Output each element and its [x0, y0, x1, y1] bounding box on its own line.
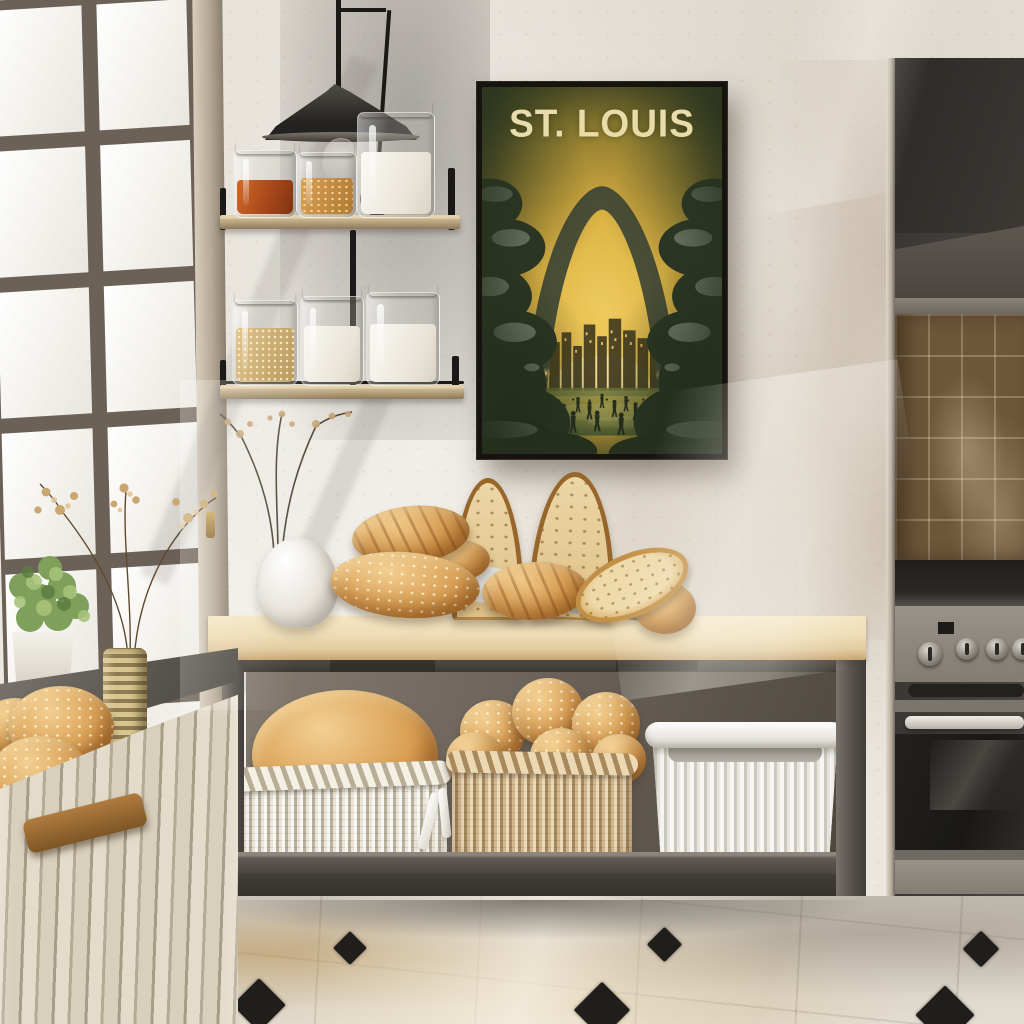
dried-branches: [212, 404, 372, 554]
oven-handle: [905, 716, 1024, 729]
oven-knob: [956, 638, 978, 660]
oven-trim: [895, 850, 1024, 860]
flour-jar-2: [366, 292, 440, 386]
oven-trim: [895, 700, 1024, 712]
ceramic-vase: [258, 538, 338, 628]
jar-lid: [369, 282, 437, 296]
table-floor-shadow: [200, 900, 880, 940]
window-pane: [0, 287, 92, 418]
jar-lid: [303, 286, 361, 300]
poster-title: ST. LOUIS: [482, 102, 722, 146]
poster-artwork: ST. LOUIS: [482, 87, 722, 454]
basket-rim: [446, 750, 638, 775]
paprika-jar: [233, 150, 297, 218]
jar-lid: [235, 290, 295, 304]
flour-contents: [361, 152, 431, 214]
apron-slot: [616, 660, 698, 671]
jar-lid: [236, 140, 294, 154]
oven-display: [938, 622, 954, 634]
tile-backsplash: [895, 314, 1024, 560]
window-pane: [96, 0, 190, 130]
oats-jar: [232, 300, 298, 386]
oven-vent: [908, 684, 1024, 697]
door-reflection: [930, 740, 1024, 810]
oven-knob: [918, 642, 942, 666]
window-pane: [100, 140, 194, 271]
window-pane: [0, 5, 84, 136]
lamp-stem: [336, 0, 341, 96]
oats-contents: [236, 328, 294, 382]
grain-jar: [297, 152, 357, 218]
hood-steel-band: [895, 298, 1024, 314]
flour-jar: [357, 112, 435, 218]
table-lower-shelf: [236, 852, 848, 874]
alcove-edge: [886, 58, 895, 908]
kitchen-photo: ST. LOUIS: [0, 0, 1024, 1024]
sugar-jar: [300, 296, 364, 386]
window-pane: [0, 146, 88, 277]
jar-lid: [300, 142, 354, 156]
apron-slot: [330, 660, 435, 672]
st-louis-poster: ST. LOUIS: [477, 82, 727, 459]
sugar-contents: [304, 326, 360, 382]
oven-knob: [986, 638, 1008, 660]
jar-lid: [360, 99, 432, 117]
cooktop: [895, 560, 1024, 606]
flour-contents: [370, 324, 436, 382]
dried-flowers: [30, 470, 220, 660]
grain-contents: [301, 178, 353, 214]
window-pane: [103, 281, 197, 412]
lamp-arm: [336, 8, 386, 12]
range-hood-chimney: [895, 58, 1024, 233]
oven-drawer: [895, 860, 1024, 894]
paprika-contents: [237, 180, 293, 214]
basket-rolled-rim: [645, 722, 845, 748]
wall-shelf-bottom: [220, 385, 464, 399]
